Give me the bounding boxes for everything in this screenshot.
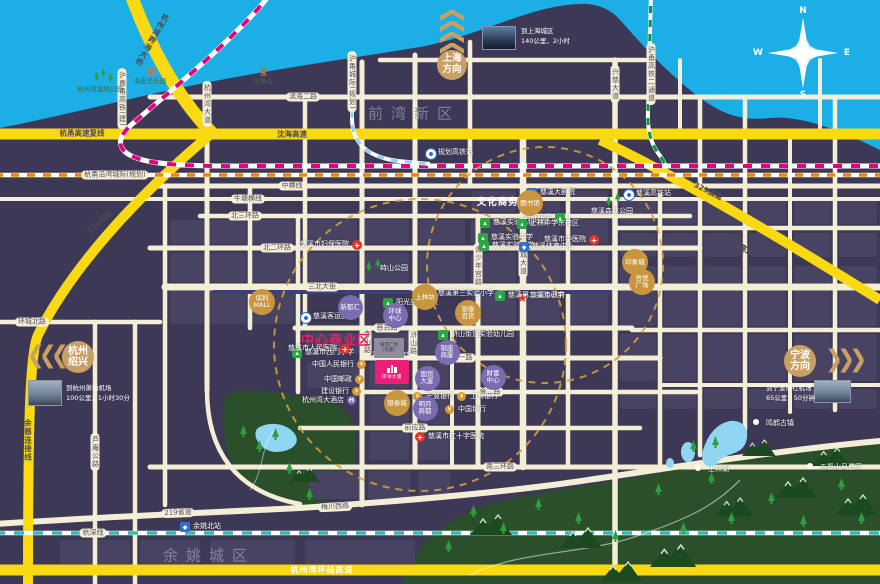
compass-n: N [799, 6, 807, 16]
hotel-marker-icon: H [347, 396, 356, 405]
poi-label: 慈溪市政府 [530, 292, 565, 300]
shanghai-info: 到上海城区 140公里，2小时 [521, 27, 570, 47]
chevron-right-icon [853, 349, 864, 373]
poi-label: 中国邮政 [324, 376, 352, 384]
dot-marker-icon [695, 465, 701, 471]
highway-label: 沈海高速 [724, 233, 755, 259]
road-label: 杭深线 [80, 529, 107, 538]
gov-marker-icon: ★ [517, 291, 528, 305]
road-label: 兴慈大道 [611, 65, 620, 103]
poi-label: 上林中学东校区 [530, 220, 579, 228]
poi-label: 规划高铁站 [438, 149, 473, 157]
poi-label: 慈溪市人民医院 [288, 345, 337, 353]
road-label: 219省道 [161, 508, 195, 518]
ningbo-info: 到宁波栎社机场 65公里，50分钟 [766, 384, 815, 404]
chevron-left-icon [43, 345, 54, 369]
bank-marker-icon: ¥ [457, 392, 466, 401]
info-line: 到宁波栎社机场 [766, 384, 815, 394]
road-label: 牛塘横线 [231, 195, 265, 204]
poi-label: 中国人民银行 [312, 361, 354, 369]
road-label: 杭州湾大道 [203, 81, 212, 127]
poi-label: 达蓬山 [253, 78, 273, 85]
highway-label: 余慈连接线 [23, 419, 34, 462]
school-marker-icon: ▴ [479, 241, 489, 251]
poi-label: 建设银行 [321, 388, 349, 396]
road-label: 北二环路 [260, 244, 294, 253]
poi-label: 慈溪森林公园 [591, 208, 633, 216]
landmark-circle: 明月商都 [413, 396, 438, 421]
bank-marker-icon: ¥ [355, 375, 364, 384]
compass-s: S [800, 90, 806, 100]
poi-label: 慈溪市红十字医院 [428, 433, 484, 441]
landmark-circle: 环球中心 [383, 303, 408, 328]
road-label: 滨海二路 [286, 93, 320, 102]
map: N S W E 上海 方向 到上海城区 140公里，2小时 杭州 绍兴 到杭州萧… [0, 0, 880, 584]
chevron-up-icon [440, 21, 464, 32]
school-marker-icon: ▴ [480, 218, 490, 228]
info-line: 100公里，1小时30分 [66, 394, 130, 404]
hangzhou-info: 到杭州萧山机场 100公里，1小时30分 [66, 384, 130, 404]
poi-label: 杭州湾湿地公园 [77, 86, 123, 93]
poi-label: 工商银行 [470, 393, 498, 401]
dot-marker-icon [807, 463, 813, 469]
landmark-circle: 银座商厦 [435, 340, 460, 365]
info-line: 到杭州萧山机场 [66, 384, 130, 394]
poi-label: 峙山公园 [380, 265, 408, 273]
road-label: 沪嘉甬高铁(建) [118, 68, 127, 129]
poi-label: 慈溪高铁站 [636, 190, 671, 198]
badge-text: 杭州 [68, 346, 88, 358]
poi-label: 浒山街道实验幼儿园 [451, 331, 514, 339]
road-label: 环城北路 [15, 318, 49, 327]
chevron-left-icon [31, 345, 42, 369]
hosp-marker-icon: + [589, 235, 599, 245]
highway-label: 329国道 [692, 179, 724, 202]
compass-e: E [844, 48, 850, 58]
hosp-marker-icon: + [340, 344, 350, 354]
civic-marker-icon: ◆ [180, 522, 190, 532]
shanghai-direction-badge: 上海 方向 [437, 50, 467, 80]
bank-marker-icon: ¥ [357, 360, 366, 369]
transit-marker-icon [425, 148, 437, 160]
mall-circle: 银泰城 [384, 390, 410, 416]
badge-text: 方向 [442, 65, 461, 76]
chevron-up-icon [440, 10, 464, 21]
landmark-circle: 新都汇 [338, 295, 363, 320]
road-label: 前应路 [402, 424, 429, 433]
highway-label: 杭州湾环线高速 [291, 565, 354, 576]
info-line: 65公里，50分钟 [766, 394, 815, 404]
poi-label: 慈溪大剧院 [540, 189, 575, 197]
highway-label: 杭甬高速复线 [60, 128, 105, 139]
info-line: 140公里，2小时 [521, 37, 570, 47]
poi-label: 杭州湾大酒店 [302, 397, 344, 405]
ningbo-airport-photo [814, 380, 851, 403]
school-marker-icon: ▴ [438, 330, 448, 340]
bank-marker-icon: ¥ [445, 405, 454, 414]
poi-label: 慈溪市妇保医院 [300, 241, 349, 249]
road-label: 梅川西路 [318, 502, 352, 513]
chevron-right-icon [841, 349, 852, 373]
dot-marker-icon [753, 419, 759, 425]
mall-circle: 上林坊 [412, 284, 438, 310]
badge-text: 绍兴 [68, 357, 88, 369]
poi-label: 鸣鹤古镇 [766, 420, 794, 428]
school-marker-icon: ▴ [517, 219, 527, 229]
highway-label: 329国道 [85, 208, 115, 237]
mall-circle: 吾悦广场 [629, 269, 655, 295]
poi-label: 慈溪第三实验小学 [438, 290, 494, 298]
hangzhou-airport-photo [28, 380, 62, 406]
road-label: 浒山路 [409, 328, 418, 358]
poi-label: 中国银行 [458, 406, 486, 414]
road-label: 三北大街 [305, 283, 339, 292]
civic-marker-icon: ◆ [519, 242, 529, 252]
poi-label: 五磊山风景区 [820, 464, 862, 472]
construction-block: 城市广场 (在建) [374, 338, 404, 358]
district-label: 余姚城区 [163, 545, 255, 566]
road-label: 芦庵公路 [91, 433, 100, 471]
road-label: 北三环路 [228, 212, 262, 221]
hangzhou-direction-badge: 杭州 绍兴 [62, 341, 94, 373]
project-marker: 环球大厦 [375, 360, 409, 384]
towers-icon [387, 365, 397, 373]
chevron-right-icon [829, 349, 840, 373]
shanghai-photo [482, 26, 516, 50]
construction-label: (在建) [383, 348, 396, 353]
badge-text: 方向 [790, 361, 810, 373]
mall-circle: 保利MALL [249, 289, 275, 315]
road-label: 南三环路 [483, 463, 517, 472]
road-label: 中横线 [279, 182, 306, 191]
transit-marker-icon [300, 312, 312, 324]
road-label: 沪甬高铁二通道 [647, 43, 656, 105]
district-label: 前湾新区 [368, 103, 460, 124]
hosp-marker-icon: + [415, 432, 425, 442]
compass-w: W [753, 48, 763, 58]
school-marker-icon: ▴ [495, 291, 505, 301]
highway-label: 杭州湾跨海大桥 [132, 11, 171, 68]
mall-circle: 图书馆 [517, 190, 543, 216]
mall-circle: 银泰百货 [455, 300, 481, 326]
info-line: 到上海城区 [521, 27, 570, 37]
badge-text: 宁波 [790, 350, 810, 362]
poi-label: 余姚北站 [193, 523, 221, 531]
bank-marker-icon: ¥ [352, 387, 361, 396]
road-label: 沪甬城际(规划) [348, 51, 357, 112]
chevron-up-icon [440, 32, 464, 43]
road-label: 杭甬沿湾城际(规划) [81, 171, 148, 180]
poi-label: 上林湖 [708, 466, 729, 474]
landmark-circle: 财富中心 [481, 365, 506, 390]
ningbo-direction-badge: 宁波 方向 [784, 345, 816, 377]
hosp-marker-icon: + [352, 240, 362, 250]
poi-label: 海皮岛乐园 [134, 78, 167, 85]
landmark-circle: 国贸大厦 [415, 366, 440, 391]
project-name: 环球大厦 [382, 374, 402, 380]
poi-label: 慈溪体育中心 [532, 243, 574, 251]
transit-marker-icon [623, 189, 635, 201]
highway-label: 沈海高速 [277, 129, 307, 140]
